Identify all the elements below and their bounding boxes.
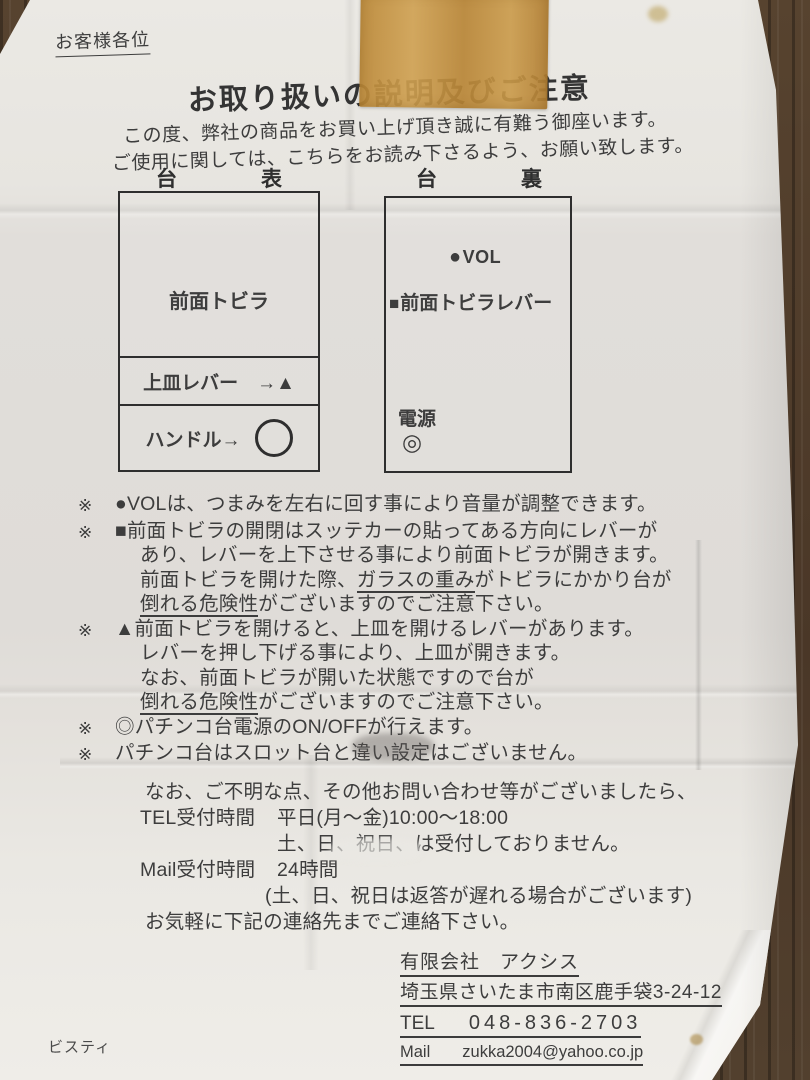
note-line: パチンコ台はスロット台と違い設定はございません。: [115, 741, 738, 766]
note-line: 前面トビラを開けた際、ガラスの重みがトビラにかかり台が: [140, 568, 738, 593]
note-marker: ※: [78, 617, 115, 715]
instruction-sheet: お客様各位 お取り扱いの説明及びご注意 この度、弊社の商品をお買い上げ頂き誠に有…: [0, 0, 810, 1080]
note-line: ■前面トビラの開閉はスッテカーの貼ってある方向にレバーが: [115, 519, 738, 544]
contact-section: なお、ご不明な点、その他お問い合わせ等がございましたら、 TEL受付時間 平日(…: [140, 779, 697, 935]
note-line: 倒れる危険性がございますのでご注意下さい。: [140, 690, 738, 715]
tel-hours-row: TEL受付時間 平日(月～金)10:00～18:00: [140, 805, 697, 831]
note-volume: ※ ●VOLは、つまみを左右に回す事により音量が調整できます。: [78, 492, 738, 519]
notes-section: ※ ●VOLは、つまみを左右に回す事により音量が調整できます。 ※ ■前面トビラ…: [78, 492, 738, 768]
note-front-door: ※ ■前面トビラの開閉はスッテカーの貼ってある方向にレバーが あり、レバーを上下…: [78, 519, 738, 617]
customer-salutation: お客様各位: [55, 25, 151, 57]
contact-intro: なお、ご不明な点、その他お問い合わせ等がございましたら、: [145, 779, 697, 805]
company-tel-label: TEL: [400, 1013, 435, 1034]
contact-closing: お気軽に下記の連絡先までご連絡下さい。: [145, 909, 697, 935]
back-label-dai: 台: [416, 163, 437, 193]
company-tel-row: TEL048-836-2703: [400, 1013, 641, 1038]
maker-label: ビスティ: [48, 1036, 111, 1057]
power-label: 電源: [398, 404, 436, 431]
note-underline-tipover-risk: 倒れる危険性: [140, 691, 258, 715]
tel-hours-label: TEL受付時間: [140, 805, 277, 831]
note-line: 倒れる危険性がございますのでご注意下さい。: [140, 592, 738, 617]
note-text: がトビラにかかり台が: [475, 569, 672, 591]
company-mail-address: zukka2004@yahoo.co.jp: [462, 1043, 643, 1061]
mail-delay-note: (土、日、祝日は返答が遅れる場合がございます): [265, 883, 697, 909]
note-marker: ※: [78, 519, 115, 617]
note-marker: ※: [78, 741, 115, 768]
note-line: ◎パチンコ台電源のON/OFFが行えます。: [115, 715, 738, 740]
door-lever-label: 前面トビラレバー: [400, 293, 552, 314]
front-diagram-label: 台 表: [118, 163, 320, 193]
note-line: ●VOLは、つまみを左右に回す事により音量が調整できます。: [115, 492, 738, 517]
note-text: 前面トビラを開けた際、: [140, 569, 357, 591]
front-label-omote: 表: [261, 163, 282, 193]
power-row: 電源 ◎: [398, 404, 436, 456]
back-diagram: ● VOL ■前面トビラレバー 電源 ◎: [384, 196, 572, 473]
mail-hours-row: Mail受付時間 24時間: [140, 857, 697, 883]
company-mail-row: Mailzukka2004@yahoo.co.jp: [400, 1044, 643, 1066]
packing-tape: [359, 0, 549, 109]
vol-knob-row: ● VOL: [449, 246, 501, 269]
tel-hours-value: 平日(月～金)10:00～18:00: [277, 805, 508, 831]
tray-lever-label: 上皿レバー →▲: [120, 356, 318, 404]
power-switch-icon: ◎: [402, 429, 436, 456]
company-block: 有限会社 アクシス 埼玉県さいたま市南区鹿手袋3-24-12 TEL048-83…: [400, 953, 722, 1072]
note-underline-tipover-risk: 倒れる危険性: [140, 593, 258, 617]
note-underline-glass-weight: ガラスの重み: [357, 569, 475, 593]
handle-label: ハンドル→: [145, 425, 240, 452]
door-lever-row: ■前面トビラレバー: [389, 288, 552, 315]
company-mail-label: Mail: [400, 1043, 430, 1061]
handle-row: ハンドル→: [120, 404, 318, 470]
back-diagram-label: 台 裏: [384, 163, 572, 193]
front-label-dai: 台: [156, 163, 177, 193]
company-name: 有限会社 アクシス: [400, 953, 579, 977]
note-marker: ※: [78, 492, 115, 519]
back-label-ura: 裏: [521, 163, 542, 193]
company-address: 埼玉県さいたま市南区鹿手袋3-24-12: [400, 983, 722, 1007]
note-line: あり、レバーを上下させる事により前面トビラが開きます。: [140, 543, 738, 568]
photo-frame: お客様各位 お取り扱いの説明及びご注意 この度、弊社の商品をお買い上げ頂き誠に有…: [0, 0, 810, 1080]
front-diagram: 前面トビラ 上皿レバー →▲ ハンドル→: [118, 191, 320, 472]
tel-closed-note: 土、日、祝日、は受付しておりません。: [277, 831, 697, 857]
company-tel-number: 048-836-2703: [469, 1012, 642, 1034]
note-marker: ※: [78, 715, 115, 742]
note-no-settings: ※ パチンコ台はスロット台と違い設定はございません。: [78, 741, 738, 768]
door-lever-icon: ■: [389, 294, 399, 313]
handle-circle-icon: [255, 419, 293, 457]
vol-label: VOL: [463, 247, 502, 268]
vol-knob-icon: ●: [449, 246, 462, 269]
note-tray-lever: ※ ▲前面トビラを開けると、上皿を開けるレバーがあります。 レバーを押し下げる事…: [78, 617, 738, 715]
mail-hours-value: 24時間: [277, 857, 339, 883]
front-door-label: 前面トビラ: [120, 193, 318, 356]
note-line: なお、前面トビラが開いた状態ですので台が: [140, 666, 738, 691]
note-text: がございますのでご注意下さい。: [258, 593, 554, 615]
mail-hours-label: Mail受付時間: [140, 857, 277, 883]
note-power: ※ ◎パチンコ台電源のON/OFFが行えます。: [78, 715, 738, 742]
note-line: ▲前面トビラを開けると、上皿を開けるレバーがあります。: [115, 617, 738, 642]
note-text: がございますのでご注意下さい。: [258, 691, 554, 713]
note-line: レバーを押し下げる事により、上皿が開きます。: [140, 641, 738, 666]
